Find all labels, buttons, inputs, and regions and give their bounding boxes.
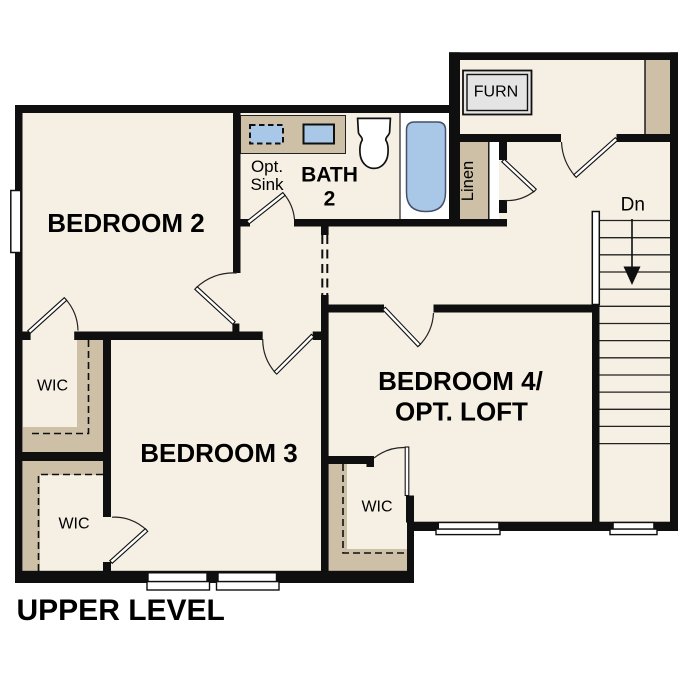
svg-text:WIC: WIC	[37, 378, 68, 395]
svg-text:BEDROOM 4/: BEDROOM 4/	[378, 366, 543, 396]
svg-text:BEDROOM 2: BEDROOM 2	[47, 208, 204, 238]
svg-text:OPT. LOFT: OPT. LOFT	[395, 397, 528, 427]
svg-text:2: 2	[324, 188, 336, 211]
svg-text:WIC: WIC	[361, 499, 392, 516]
svg-text:Sink: Sink	[250, 175, 284, 194]
svg-text:UPPER LEVEL: UPPER LEVEL	[17, 594, 225, 627]
svg-text:Linen: Linen	[459, 161, 477, 201]
svg-text:Opt.: Opt.	[251, 157, 283, 176]
svg-text:WIC: WIC	[58, 516, 89, 533]
svg-text:BATH: BATH	[301, 164, 358, 187]
svg-text:FURN: FURN	[474, 84, 518, 101]
svg-text:Dn: Dn	[621, 195, 645, 216]
svg-text:BEDROOM 3: BEDROOM 3	[140, 438, 297, 468]
